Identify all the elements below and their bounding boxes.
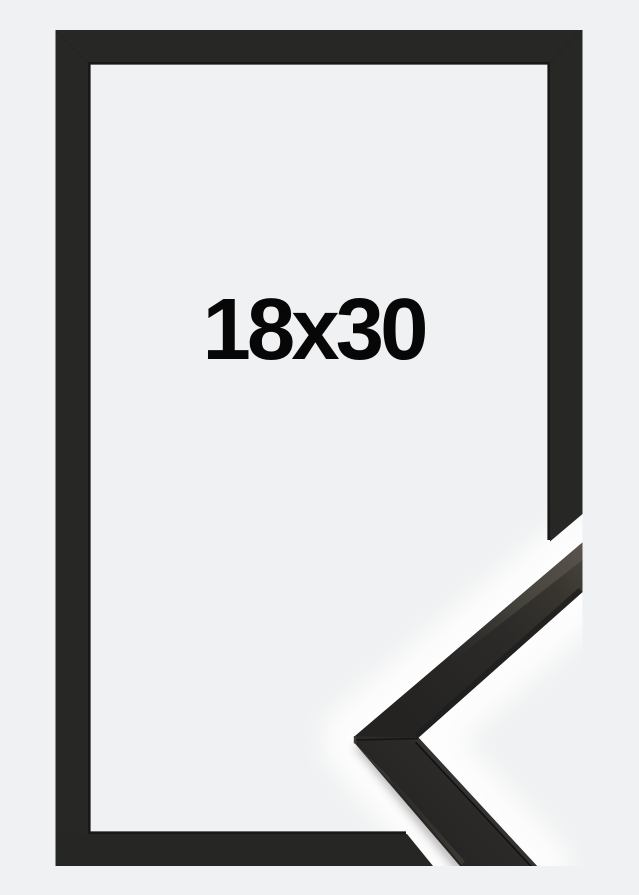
svg-text:18x30: 18x30 (203, 281, 426, 378)
